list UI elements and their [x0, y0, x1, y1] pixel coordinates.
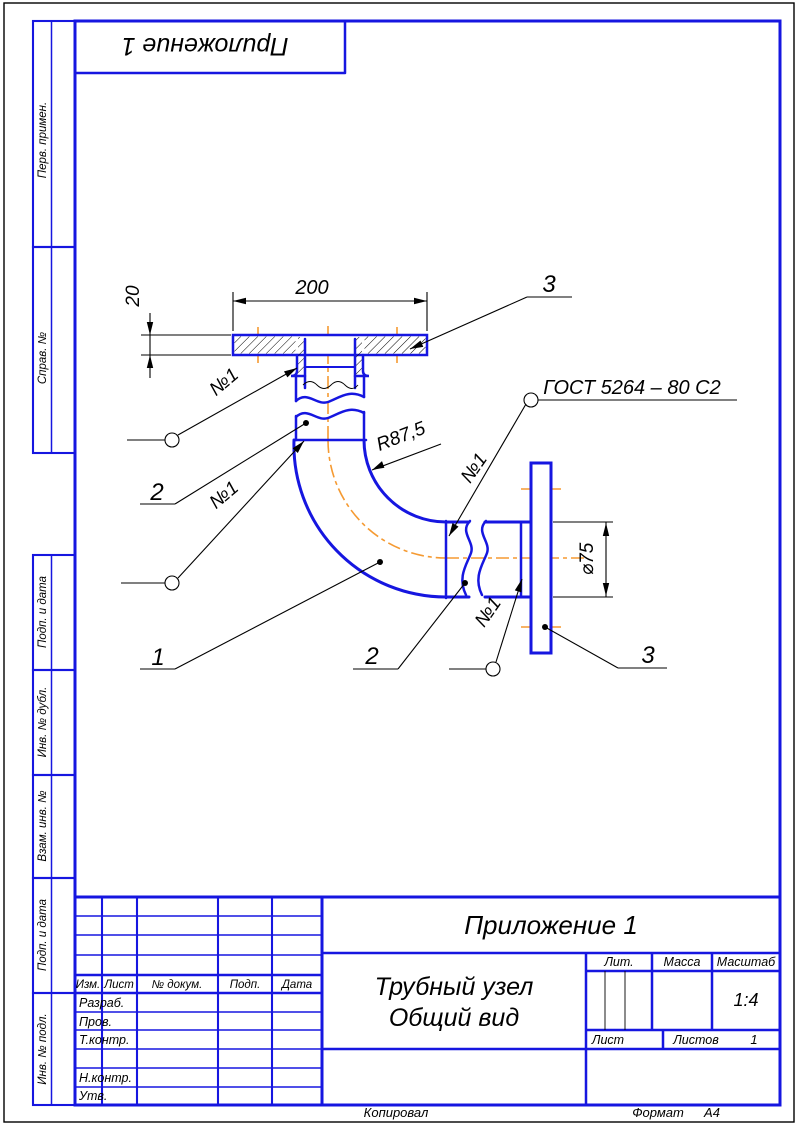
tb-scale-value: 1:4 [733, 990, 758, 1010]
callout-2-lower-number: 2 [364, 643, 378, 670]
weld-label-2: №1 [206, 477, 243, 513]
strip-label-2: Справ. № [37, 331, 49, 384]
strip-label-5: Взам. инв. № [37, 790, 49, 862]
flange-hatch-left [235, 337, 296, 354]
strip-label-1: Перв. примен. [37, 102, 49, 178]
hub-hatch-left [298, 337, 305, 375]
callout-1-dot [377, 559, 383, 565]
callout-2-lower-dot [462, 580, 468, 586]
weld-leader3-line [496, 579, 522, 662]
footer-copied-label: Копировал [364, 1105, 429, 1120]
callout-3-top-number: 3 [542, 271, 556, 298]
dim-radius: R87,5 [372, 418, 441, 470]
hpipe-walls-right [485, 522, 531, 597]
callout-2-upper-number: 2 [149, 479, 163, 506]
top-appendix-label: Приложение 1 [122, 32, 289, 60]
tb-lit-label: Лит. [603, 955, 633, 969]
weld-leader3-arrow [515, 579, 522, 592]
tb-mass-label: Масса [664, 955, 701, 969]
top-appendix-box: Приложение 1 [75, 21, 345, 73]
callout-2-upper-dot [303, 420, 309, 426]
dim-d75-arrow-bottom [603, 583, 609, 596]
callout-3-lower-leader [545, 627, 618, 668]
dim-thickness-20: 20 [123, 285, 231, 378]
weld-leader3-circle [486, 662, 500, 676]
tb-col-list: Лист [103, 979, 134, 991]
strip-label-7: Инв. № подл. [37, 1013, 49, 1084]
tb-doc-name-line1: Трубный узел [375, 973, 534, 1001]
weld-note-arrow [449, 523, 459, 536]
footer-format-label: Формат [632, 1105, 684, 1120]
dim-width-200: 200 [233, 277, 427, 331]
footer-format-value: А4 [703, 1105, 720, 1120]
dim-20-arrow-top [147, 322, 153, 335]
weld-leader1-circle [165, 433, 179, 447]
tb-sheets-value: 1 [750, 1032, 757, 1047]
tb-row-razrab: Разраб. [79, 996, 124, 1010]
strip-label-6: Подп. и дата [37, 899, 49, 971]
dim-20-arrow-bottom [147, 355, 153, 368]
dim-diameter: ⌀75 [553, 522, 613, 597]
dim-200-arrow-right [414, 298, 427, 304]
callout-3-lower-number: 3 [641, 642, 655, 669]
right-flange [531, 463, 551, 653]
drawing-sheet: Приложение 1 Перв. примен. Справ. № Подп… [0, 0, 798, 1127]
tb-row-prov: Пров. [79, 1015, 112, 1029]
tb-lit-subdividers [605, 971, 625, 1030]
tb-col-ndokum: № докум. [152, 979, 203, 991]
tb-doc-name-line2: Общий вид [389, 1004, 519, 1032]
hub-hatch-right [356, 337, 363, 375]
top-flange [233, 335, 427, 389]
side-strip: Перв. примен. Справ. № Подп. и дата Инв.… [33, 21, 75, 1105]
dim-d75-arrow-top [603, 523, 609, 536]
position-callouts: 3 2 1 2 3 [140, 271, 667, 671]
dim-200-extension-lines [233, 292, 427, 331]
weld-note: ГОСТ 5264 – 80 С2 [449, 377, 737, 536]
tb-sheet-label: Лист [591, 1033, 624, 1047]
dim-radius-arrow [372, 461, 384, 470]
tb-row-tkontr: Т.контр. [79, 1033, 129, 1047]
weld-seam-labels: №1 №1 №1 №1 [206, 364, 506, 631]
callout-1-leader [175, 562, 380, 669]
vertical-pipe-and-elbow [294, 377, 446, 598]
callout-1-number: 1 [151, 644, 164, 671]
pipe-assembly-view: 200 20 R87,5 ⌀75 [121, 271, 737, 676]
tb-col-izm: Изм. [76, 979, 101, 991]
pipe-break-s2 [296, 410, 364, 419]
elbow-inner-arc [364, 440, 446, 522]
dim-200-arrow-left [233, 298, 246, 304]
dim-radius-value: R87,5 [374, 418, 429, 456]
tb-appendix: Приложение 1 [464, 910, 638, 940]
weld-label-1: №1 [206, 364, 243, 400]
tb-sheets-label: Листов [672, 1033, 719, 1047]
strip-label-4: Инв. № дубл. [37, 687, 49, 758]
strip-label-3: Подп. и дата [37, 576, 49, 648]
dim-d75-value: ⌀75 [577, 542, 598, 575]
dim-200-value: 200 [294, 277, 328, 299]
tb-row-nkontr: Н.контр. [79, 1071, 132, 1085]
weld-label-4: №1 [471, 594, 506, 632]
pipe-break-s1 [296, 394, 364, 403]
callout-3-lower-dot [542, 624, 548, 630]
sheet-footer: Копировал Формат А4 [364, 1105, 720, 1120]
pipe-break-freehand [303, 382, 358, 389]
tb-scale-label: Масштаб [717, 955, 776, 969]
title-block: Приложение 1 Трубный узел Общий вид Лит.… [75, 897, 780, 1105]
weld-label-3: №1 [457, 450, 492, 488]
weld-leader2-line [178, 441, 304, 578]
tb-col-podp: Подп. [230, 979, 261, 991]
dim-20-extension-lines [141, 335, 231, 355]
tb-col-data: Дата [280, 979, 312, 991]
weld-note-text: ГОСТ 5264 – 80 С2 [543, 377, 720, 399]
drawing-frame [75, 21, 780, 1105]
tb-row-utv: Утв. [78, 1089, 107, 1103]
dim-20-value: 20 [123, 285, 144, 308]
weld-leader2-circle [165, 576, 179, 590]
